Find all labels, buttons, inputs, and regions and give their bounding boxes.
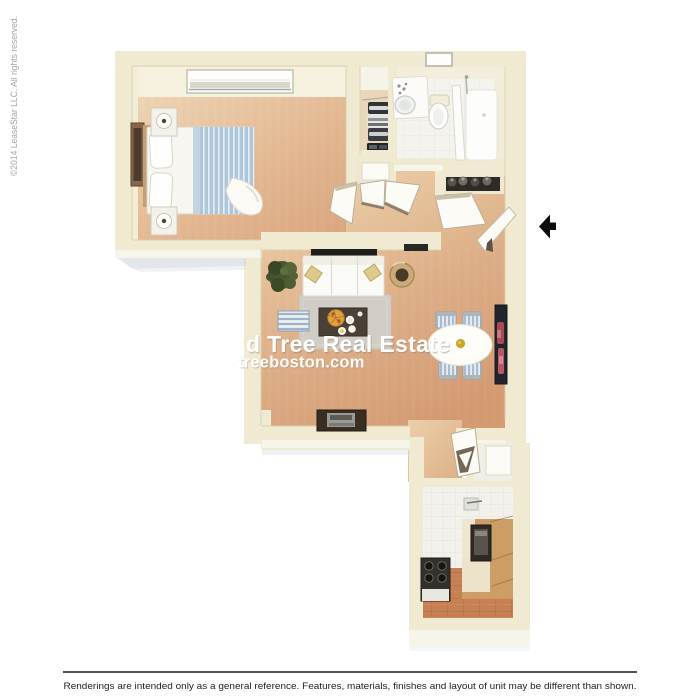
- svg-text:Renderings are intended only a: Renderings are intended only as a genera…: [64, 681, 637, 692]
- svg-text:treeboston.com: treeboston.com: [238, 354, 365, 372]
- svg-text:©2014 LeaseStar LLC. All right: ©2014 LeaseStar LLC. All rights reserved…: [9, 16, 19, 176]
